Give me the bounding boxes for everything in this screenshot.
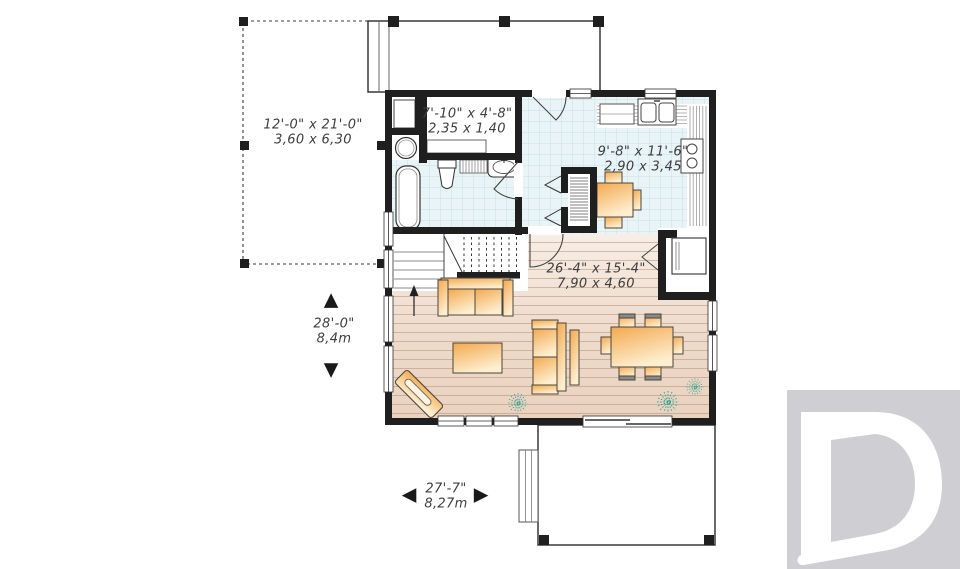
living-dim-imperial: 26'-4" x 15'-4" [546, 262, 645, 277]
dimension-arrow-down-icon: ▼ [324, 361, 339, 380]
width-dim-metric: 8,27m [424, 497, 467, 512]
kitchen-sink-icon [638, 99, 676, 125]
dishwasher-icon [600, 104, 634, 124]
bathtub-icon [396, 166, 420, 230]
dining-table [611, 327, 673, 367]
drummond-d-logo [787, 390, 960, 569]
bathroom-dim-metric: 2,35 x 1,40 [422, 122, 513, 137]
deck-dimensions-label: 12'-0" x 21'-0" 3,60 x 6,30 [263, 118, 362, 147]
vanity-counter [427, 140, 486, 153]
kitchen-dim-imperial: 9'-8" x 11'-6" [598, 145, 689, 160]
dimension-arrow-up-icon: ▲ [324, 291, 339, 310]
depth-dimension-label: 28'-0" 8,4m [313, 317, 354, 346]
fridge-icon [672, 238, 706, 274]
armchair [532, 320, 566, 394]
sofa [438, 278, 513, 316]
kitchen-dimensions-label: 9'-8" x 11'-6" 2,90 x 3,45 [598, 145, 689, 174]
floor-plan: 12'-0" x 21'-0" 3,60 x 6,30 7'-10" x 4'-… [0, 0, 960, 569]
width-dimension-label: 27'-7" 8,27m [424, 482, 467, 511]
dimension-arrow-left-icon: ◀ [402, 486, 417, 505]
dimension-arrow-right-icon: ▶ [474, 486, 489, 505]
top-porch [368, 16, 604, 92]
bathroom-dim-imperial: 7'-10" x 4'-8" [422, 107, 513, 122]
patio-door [583, 416, 672, 427]
deck-dim-imperial: 12'-0" x 21'-0" [263, 118, 362, 133]
bath-shelf [460, 160, 487, 173]
bottom-porch [519, 425, 715, 545]
coffee-table [453, 343, 502, 373]
width-dim-imperial: 27'-7" [424, 482, 467, 497]
closet [394, 100, 415, 128]
kitchen-dim-metric: 2,90 x 3,45 [598, 160, 689, 175]
depth-dim-metric: 8,4m [313, 332, 354, 347]
living-dimensions-label: 26'-4" x 15'-4" 7,90 x 4,60 [546, 262, 645, 291]
depth-dim-imperial: 28'-0" [313, 317, 354, 332]
living-dim-metric: 7,90 x 4,60 [546, 277, 645, 292]
console-table [570, 330, 579, 385]
deck-dim-metric: 3,60 x 6,30 [263, 133, 362, 148]
bathroom-dimensions-label: 7'-10" x 4'-8" 2,35 x 1,40 [422, 107, 513, 136]
washer-icon [396, 138, 417, 159]
